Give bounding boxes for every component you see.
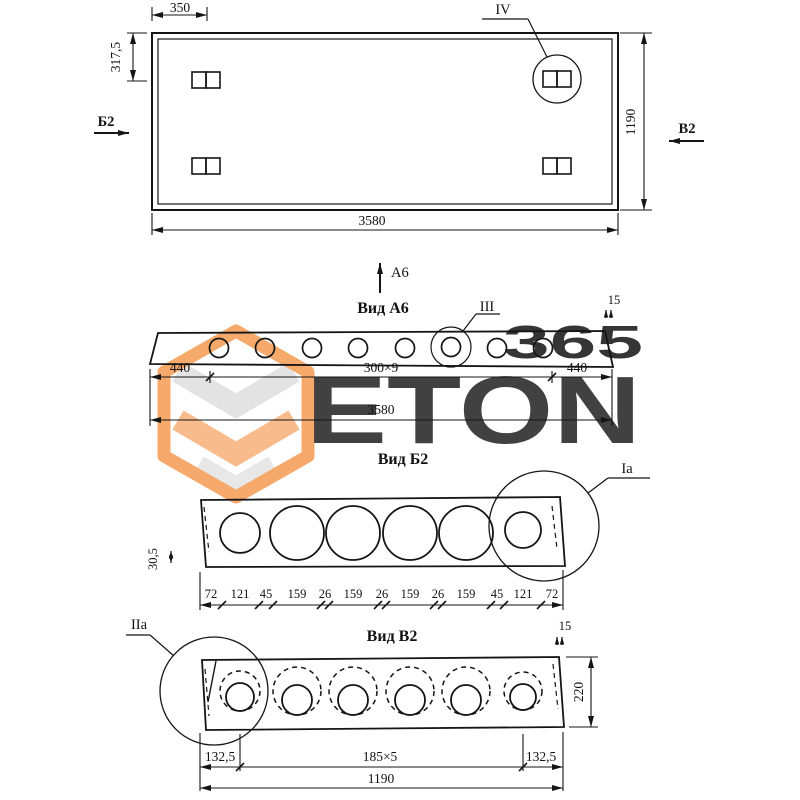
void-circle-hidden — [329, 667, 377, 715]
hole-circle — [210, 339, 229, 358]
chain-label: 45 — [260, 587, 273, 601]
hole-circle — [451, 685, 481, 715]
hole-circle — [488, 339, 507, 358]
void-circle-hidden — [273, 667, 321, 715]
void-circle — [505, 512, 541, 548]
a6-dim-440-left: 440 — [170, 360, 191, 375]
hole-circle — [442, 338, 461, 357]
gap-15-label-v2: 15 — [559, 619, 572, 633]
hole-circle — [338, 685, 368, 715]
void-circle-hidden — [386, 667, 434, 715]
detail-III-leader — [463, 314, 500, 331]
chain-label: 72 — [205, 587, 218, 601]
a6-dim-3580: 3580 — [368, 402, 395, 417]
detail-circle-III — [431, 327, 471, 367]
technical-drawing-page: 365 ETON — [0, 0, 800, 800]
hole-circle — [396, 339, 415, 358]
dim-30-5-label: 30,5 — [146, 548, 160, 570]
dim-220-label: 220 — [571, 682, 586, 703]
v2-dim-185x5: 185×5 — [363, 749, 398, 764]
v2-left-bevel — [208, 661, 216, 702]
dim-317-5 — [127, 33, 147, 81]
hole-circle — [349, 339, 368, 358]
view-v2-title: Вид В2 — [367, 628, 418, 645]
detail-IIa-leader — [126, 635, 174, 656]
detail-label-IIa: IIa — [131, 617, 148, 633]
void-circle — [270, 506, 324, 560]
lifting-loop — [543, 71, 557, 87]
void-circle — [326, 506, 380, 560]
view-a6-title: Вид А6 — [357, 300, 409, 317]
hole-circle — [256, 339, 275, 358]
hole-circle — [303, 339, 322, 358]
detail-Ia-leader — [588, 478, 650, 493]
dim-350-label: 350 — [170, 0, 191, 15]
lifting-loop — [192, 72, 206, 88]
chain-label: 159 — [288, 587, 307, 601]
dim-317-5-label: 317,5 — [108, 42, 123, 73]
direction-label-a6: А6 — [391, 265, 409, 281]
chain-label: 26 — [376, 587, 389, 601]
detail-label-III: III — [480, 299, 495, 315]
v2-dim-132-5-right: 132,5 — [526, 749, 557, 764]
hole-circle — [395, 685, 425, 715]
plan-inner-edge — [158, 39, 612, 204]
chain-label: 159 — [401, 587, 420, 601]
view-v2 — [126, 635, 598, 791]
detail-IV-leader — [482, 19, 547, 57]
v2-dim-1190: 1190 — [368, 771, 395, 786]
chain-label: 121 — [231, 587, 250, 601]
void-circle-hidden — [442, 667, 490, 715]
drawing: 350 317,5 1190 3580 Б2 B2 IV — [0, 0, 800, 800]
lifting-loop — [557, 71, 571, 87]
v2-dim-132-5-left: 132,5 — [205, 749, 236, 764]
a6-dim-lines — [150, 369, 612, 426]
void-circle-hidden — [220, 671, 260, 711]
dim-1190-label: 1190 — [623, 109, 638, 136]
chain-label: 72 — [546, 587, 559, 601]
chain-label: 26 — [319, 587, 332, 601]
lifting-loop — [543, 158, 557, 174]
lifting-loop — [206, 158, 220, 174]
chain-label: 159 — [457, 587, 476, 601]
dim-3580-plan-label: 3580 — [359, 213, 386, 228]
gap-marker-15-v2 — [557, 637, 562, 645]
b2-chain-labels: 72 121 45 159 26 159 26 159 26 159 45 12… — [205, 587, 559, 601]
void-circle — [439, 506, 493, 560]
void-circle — [383, 506, 437, 560]
chain-label: 159 — [344, 587, 363, 601]
a6-dim-440-right: 440 — [567, 360, 588, 375]
hole-circle — [282, 685, 312, 715]
gap-15-label-a6: 15 — [608, 293, 621, 307]
void-circle-hidden — [504, 672, 542, 710]
plan-outline — [152, 33, 618, 210]
hole-circle — [534, 339, 553, 358]
chain-label: 121 — [514, 587, 533, 601]
section-label-b2-left: Б2 — [98, 114, 115, 130]
b2-voids — [220, 506, 541, 560]
lifting-loop — [557, 158, 571, 174]
a6-dim-300x9: 300×9 — [364, 360, 399, 375]
void-circle — [220, 513, 260, 553]
lifting-loop — [206, 72, 220, 88]
b2-right-bevel-hidden — [552, 506, 557, 549]
lifting-loop — [192, 158, 206, 174]
view-b2-title: Вид Б2 — [378, 451, 429, 468]
a6-holes — [210, 338, 553, 358]
plan-view — [94, 7, 704, 235]
lifting-loops — [192, 71, 571, 174]
gap-marker-15-a6 — [606, 310, 611, 318]
chain-label: 45 — [491, 587, 504, 601]
section-label-b2-right: B2 — [679, 121, 696, 137]
detail-label-IV: IV — [495, 2, 511, 18]
v2-right-bevel-hidden — [553, 664, 558, 709]
chain-label: 26 — [432, 587, 445, 601]
hole-circle — [510, 684, 536, 710]
hole-circle — [226, 683, 254, 711]
detail-label-Ia: Ia — [621, 461, 633, 477]
